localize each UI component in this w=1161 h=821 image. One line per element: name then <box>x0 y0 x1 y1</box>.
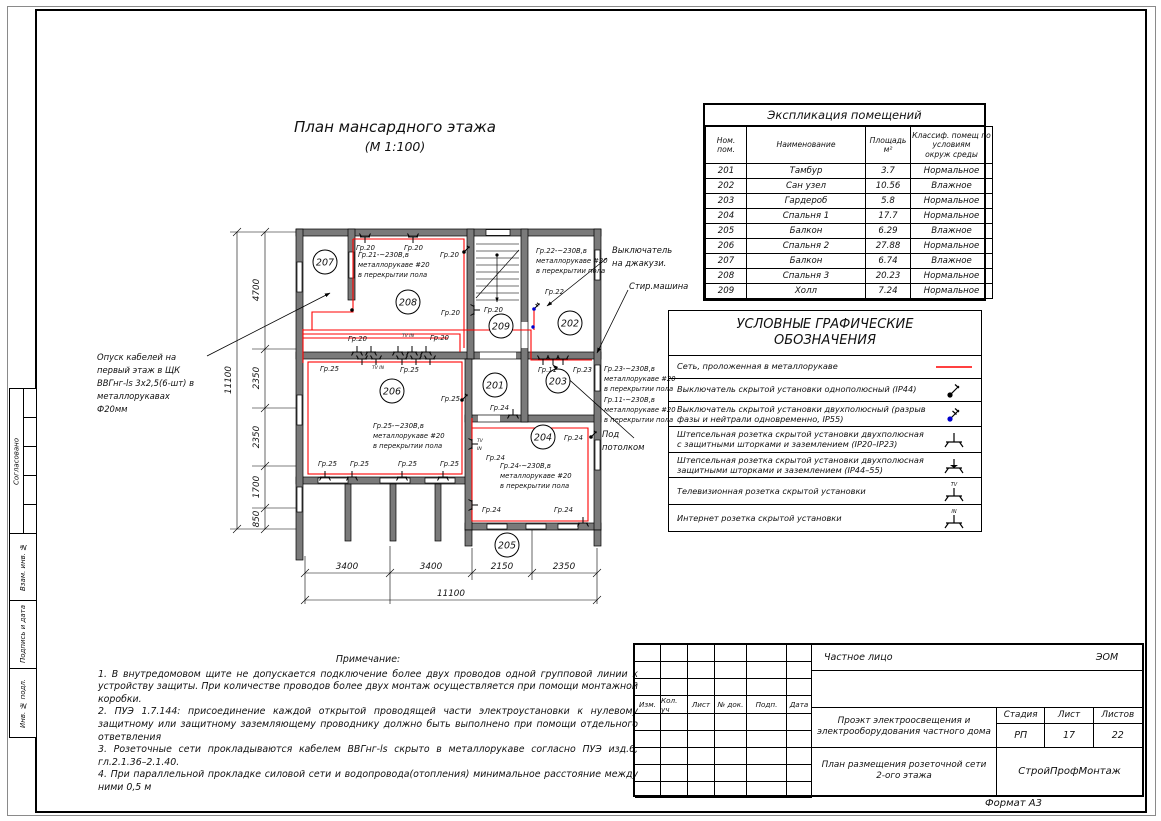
circuit-label: Гр.24 <box>564 434 583 442</box>
drawing-sheet: Согласовано Взам. инв. № Подпись и дата … <box>0 0 1161 821</box>
sheet-value: 17 <box>1045 724 1093 747</box>
rev-header: Лист <box>688 696 715 714</box>
annotation: Подпотолком <box>602 429 644 452</box>
schedule-cell: 7.24 <box>866 284 911 299</box>
circuit-label: Гр.24 <box>482 506 501 514</box>
rev-cell <box>635 679 661 696</box>
red-line-icon <box>931 359 977 375</box>
rev-cell <box>747 714 787 731</box>
dimension-value: 3400 <box>420 562 443 572</box>
leader-lines <box>207 258 634 438</box>
rev-cell <box>661 782 688 798</box>
rev-header: Изм. <box>635 696 661 714</box>
stairs <box>476 244 519 302</box>
dimension-value: 11100 <box>224 366 234 394</box>
svg-text:204: 204 <box>534 433 552 444</box>
room-number: 205 <box>495 533 519 557</box>
schedule-cell: Нормальное <box>911 194 993 209</box>
room-number: 207 <box>313 250 337 274</box>
socket-in-icon: IN <box>931 507 977 529</box>
project-name: Проэкт электроосвещения и электрооборудо… <box>812 707 997 747</box>
rev-cell <box>747 782 787 798</box>
annotation: Опуск кабелей напервый этаж в ЩКВВГнг-ls… <box>97 352 194 414</box>
schedule-cell: Балкон <box>747 224 866 239</box>
rev-cell <box>661 714 688 731</box>
circuit-label: Гр.25 <box>350 460 369 468</box>
wiring-note: Гр.21-~230В,вметаллорукаве #20в перекрыт… <box>358 251 430 279</box>
schedule-cell: 208 <box>706 269 747 284</box>
rev-cell <box>661 731 688 748</box>
rev-cell <box>747 662 787 679</box>
dimension-value: 3400 <box>336 562 359 572</box>
rev-cell <box>787 645 812 662</box>
socket-tv-icon: TV <box>931 480 977 502</box>
socket-icon <box>931 430 977 448</box>
schedule-cell: 27.88 <box>866 239 911 254</box>
legend-item-text: Интернет розетка скрытой установки <box>677 513 931 523</box>
circuit-label: Гр.25 <box>318 460 337 468</box>
note-line: 1. В внутредомовом щите не допускается п… <box>98 669 638 707</box>
schedule-row: 206Спальня 227.88Нормальное <box>706 239 993 254</box>
wire-neutral-dot <box>531 325 534 328</box>
rev-cell <box>635 782 661 798</box>
schedule-row: 201Тамбур3.7Нормальное <box>706 164 993 179</box>
drawing-name: План размещения розеточной сети 2-ого эт… <box>812 747 997 795</box>
note-line: 2. ПУЭ 1.7.144: присоединение каждой отк… <box>98 706 638 744</box>
schedule-cell: Гардероб <box>747 194 866 209</box>
annotation: Стир.машина <box>629 281 688 291</box>
sheet-label: Лист <box>1045 707 1093 724</box>
rev-cell <box>688 731 715 748</box>
rev-cell <box>635 731 661 748</box>
circuit-label: Гр.11 <box>538 366 557 374</box>
rev-cell <box>635 662 661 679</box>
circuit-label: Гр.20 <box>348 335 367 343</box>
rev-cell <box>661 645 688 662</box>
wiring-note: Гр.23-~230В,вметаллорукаве #20в перекрыт… <box>604 365 676 393</box>
rev-cell <box>787 765 812 782</box>
svg-text:IN: IN <box>951 509 956 515</box>
schedule-row: 202Сан узел10.56Влажное <box>706 179 993 194</box>
schedule-row: 205Балкон6.29Влажное <box>706 224 993 239</box>
switch-1p-icon <box>931 381 977 399</box>
tv-in-label: IN <box>477 446 482 452</box>
circuit-label: Гр.25 <box>440 460 459 468</box>
schedule-cell: 6.74 <box>866 254 911 269</box>
rev-cell <box>688 679 715 696</box>
rev-header: Дата <box>787 696 812 714</box>
room-number: 204 <box>531 425 555 449</box>
rev-header: № док. <box>715 696 747 714</box>
cable-drop-point <box>350 308 354 312</box>
svg-text:TV: TV <box>951 482 958 488</box>
rev-cell <box>787 748 812 765</box>
circuit-label: Гр.25 <box>320 365 339 373</box>
schedule-cell: Спальня 1 <box>747 209 866 224</box>
rev-cell <box>688 782 715 798</box>
tv-in-label: TV <box>477 438 484 444</box>
schedule-cell: Влажное <box>911 254 993 269</box>
rev-cell <box>747 731 787 748</box>
schedule-cell: 6.29 <box>866 224 911 239</box>
annotation: Выключательна джакузи. <box>612 245 672 268</box>
legend-item-text: Выключатель скрытой установки однополюсн… <box>677 384 931 394</box>
legend-item-text: Выключатель скрытой установки двухполюсн… <box>677 404 931 425</box>
legend: УСЛОВНЫЕ ГРАФИЧЕСКИЕ ОБОЗНАЧЕНИЯ Сеть, п… <box>668 310 982 532</box>
rev-cell <box>688 714 715 731</box>
rev-cell <box>787 662 812 679</box>
legend-item-text: Сеть, проложенная в металлорукаве <box>677 361 931 371</box>
circuit-label: Гр.20 <box>441 309 460 317</box>
schedule-cell: 202 <box>706 179 747 194</box>
rev-cell <box>787 714 812 731</box>
schedule-cell: Нормальное <box>911 239 993 254</box>
schedule-cell: 205 <box>706 224 747 239</box>
dimension-value: 1700 <box>252 475 262 498</box>
schedule-row: 208Спальня 320.23Нормальное <box>706 269 993 284</box>
schedule-row: 204Спальня 117.7Нормальное <box>706 209 993 224</box>
rev-cell <box>661 748 688 765</box>
circuit-label: Гр.25 <box>400 366 419 374</box>
dimension-value: 850 <box>252 510 262 527</box>
circuit-label: Гр.24 <box>490 404 509 412</box>
circuit-label: Гр.20 <box>484 306 503 314</box>
schedule-cell: Нормальное <box>911 269 993 284</box>
legend-item: Выключатель скрытой установки однополюсн… <box>669 378 981 401</box>
schedule-header: Площадь м² <box>866 127 911 164</box>
room-number: 206 <box>380 379 404 403</box>
stage-label: Стадия <box>997 707 1045 724</box>
schedule-cell: 209 <box>706 284 747 299</box>
room-number: 202 <box>558 311 582 335</box>
schedule-cell: 5.8 <box>866 194 911 209</box>
svg-text:203: 203 <box>549 377 567 388</box>
schedule-cell: 10.56 <box>866 179 911 194</box>
legend-item-text: Штепсельная розетка скрытой установки дв… <box>677 429 931 450</box>
schedule-cell: Нормальное <box>911 164 993 179</box>
circuit-label: Гр.23 <box>573 366 592 374</box>
schedule-row: 209Холл7.24Нормальное <box>706 284 993 299</box>
schedule-cell: Спальня 2 <box>747 239 866 254</box>
rev-cell <box>715 765 747 782</box>
switch-icon <box>532 303 539 311</box>
rev-cell <box>635 748 661 765</box>
circuit-label: Гр.20 <box>440 251 459 259</box>
schedule-header: Наименование <box>747 127 866 164</box>
schedule-cell: Спальня 3 <box>747 269 866 284</box>
rev-cell <box>688 748 715 765</box>
document-code: ЭОМ <box>1072 652 1142 663</box>
legend-item: Интернет розетка скрытой установкиIN <box>669 504 981 531</box>
rev-cell <box>688 662 715 679</box>
rev-cell <box>715 679 747 696</box>
legend-item: Выключатель скрытой установки двухполюсн… <box>669 401 981 427</box>
stage-table: Стадия Лист Листов РП 17 22 <box>997 707 1142 747</box>
rev-header: Кол. уч <box>661 696 688 714</box>
schedule-header: Ном. пом. <box>706 127 747 164</box>
rev-header: Подп. <box>747 696 787 714</box>
schedule-cell: Влажное <box>911 224 993 239</box>
legend-item: Телевизионная розетка скрытой установкиT… <box>669 477 981 504</box>
schedule-cell: 204 <box>706 209 747 224</box>
customer-name: Частное лицо <box>812 652 1072 663</box>
room-number: 201 <box>483 373 507 397</box>
schedule-cell: 203 <box>706 194 747 209</box>
schedule-cell: 206 <box>706 239 747 254</box>
svg-text:207: 207 <box>316 258 334 269</box>
format-label: Формат А3 <box>985 798 1042 809</box>
rev-cell <box>747 765 787 782</box>
schedule-cell: Балкон <box>747 254 866 269</box>
schedule-cell: 17.7 <box>866 209 911 224</box>
rev-cell <box>635 765 661 782</box>
schedule-cell: 207 <box>706 254 747 269</box>
dimension-value: 2350 <box>252 366 262 389</box>
room-number: 209 <box>489 314 513 338</box>
schedule-cell: Сан узел <box>747 179 866 194</box>
notes-title: Примечание: <box>98 654 638 667</box>
rev-cell <box>787 782 812 798</box>
rev-cell <box>715 645 747 662</box>
rev-cell <box>715 782 747 798</box>
rev-cell <box>715 748 747 765</box>
rev-cell <box>747 679 787 696</box>
tv-in-label: TV IN <box>372 365 385 371</box>
schedule-row: 207Балкон6.74Влажное <box>706 254 993 269</box>
rev-cell <box>747 748 787 765</box>
rev-cell <box>715 714 747 731</box>
rev-cell <box>688 645 715 662</box>
svg-text:201: 201 <box>486 381 504 392</box>
legend-item-text: Телевизионная розетка скрытой установки <box>677 486 931 496</box>
rev-cell <box>747 645 787 662</box>
legend-item-text: Штепсельная розетка скрытой установки дв… <box>677 455 931 476</box>
circuit-label: Гр.25 <box>398 460 417 468</box>
circuit-label: Гр.24 <box>486 454 505 462</box>
legend-title: УСЛОВНЫЕ ГРАФИЧЕСКИЕ ОБОЗНАЧЕНИЯ <box>669 311 981 355</box>
legend-item: Штепсельная розетка скрытой установки дв… <box>669 426 981 452</box>
circuit-label: Гр.22 <box>545 288 564 296</box>
room-number: 208 <box>396 290 420 314</box>
circuit-label: Гр.20 <box>430 334 449 342</box>
dimension-value: 2350 <box>252 425 262 448</box>
note-line: 4. При параллельной прокладке силовой се… <box>98 769 638 794</box>
dimension-value: 11100 <box>437 589 465 599</box>
circuit-label: Гр.24 <box>554 506 573 514</box>
schedule-cell: Нормальное <box>911 284 993 299</box>
room-schedule-table: Экспликация помещений Ном. пом.Наименова… <box>703 103 986 301</box>
wiring-note: Гр.25-~230В,вметаллорукаве #20в перекрыт… <box>373 422 445 450</box>
schedule-cell: 201 <box>706 164 747 179</box>
dimension-value: 2150 <box>491 562 514 572</box>
sheets-label: Листов <box>1094 707 1142 724</box>
stage-value: РП <box>997 724 1045 747</box>
note-line: 3. Розеточные сети прокладываются кабеле… <box>98 744 638 769</box>
schedule-cell: Влажное <box>911 179 993 194</box>
rev-cell <box>787 679 812 696</box>
schedule-row: 203Гардероб5.8Нормальное <box>706 194 993 209</box>
schedule-cell: Тамбур <box>747 164 866 179</box>
schedule-cell: Нормальное <box>911 209 993 224</box>
circuit-label: Гр.25 <box>441 395 460 403</box>
rev-cell <box>635 645 661 662</box>
rev-cell <box>787 731 812 748</box>
notes: Примечание: 1. В внутредомовом щите не д… <box>98 654 638 795</box>
title-block: Изм.Кол. учЛист№ док.Подп.Дата Частное л… <box>633 643 1144 797</box>
switch-2p-icon <box>931 405 977 423</box>
svg-text:202: 202 <box>561 319 579 330</box>
legend-item: Сеть, проложенная в металлорукаве <box>669 355 981 378</box>
wiring-note: Гр.24-~230В,вметаллорукаве #20в перекрыт… <box>500 462 572 490</box>
socket-ip44-icon <box>931 456 977 474</box>
legend-item: Штепсельная розетка скрытой установки дв… <box>669 452 981 478</box>
schedule-cell: 20.23 <box>866 269 911 284</box>
rev-cell <box>635 714 661 731</box>
svg-text:206: 206 <box>383 387 401 398</box>
wiring-note: Гр.11-~230В,вметаллорукаве #20в перекрыт… <box>604 396 676 424</box>
schedule-cell: 3.7 <box>866 164 911 179</box>
svg-text:208: 208 <box>399 298 417 309</box>
titleblock-empty-row <box>812 670 1142 708</box>
dimension-value: 4700 <box>252 278 262 301</box>
dimension-value: 2350 <box>553 562 576 572</box>
rev-cell <box>661 662 688 679</box>
rev-cell <box>688 765 715 782</box>
rev-cell <box>715 662 747 679</box>
schedule-header: Классиф. помещ по условиям окруж среды <box>911 127 993 164</box>
company-name: СтройПрофМонтаж <box>997 747 1142 795</box>
rev-cell <box>661 679 688 696</box>
rev-cell <box>715 731 747 748</box>
svg-text:205: 205 <box>498 541 516 552</box>
room-schedule-title: Экспликация помещений <box>705 105 984 126</box>
rev-cell <box>661 765 688 782</box>
schedule-cell: Холл <box>747 284 866 299</box>
revision-grid: Изм.Кол. учЛист№ док.Подп.Дата <box>635 645 812 795</box>
sheets-value: 22 <box>1094 724 1142 747</box>
svg-text:209: 209 <box>492 322 510 333</box>
tv-in-label: TV IN <box>402 333 415 339</box>
